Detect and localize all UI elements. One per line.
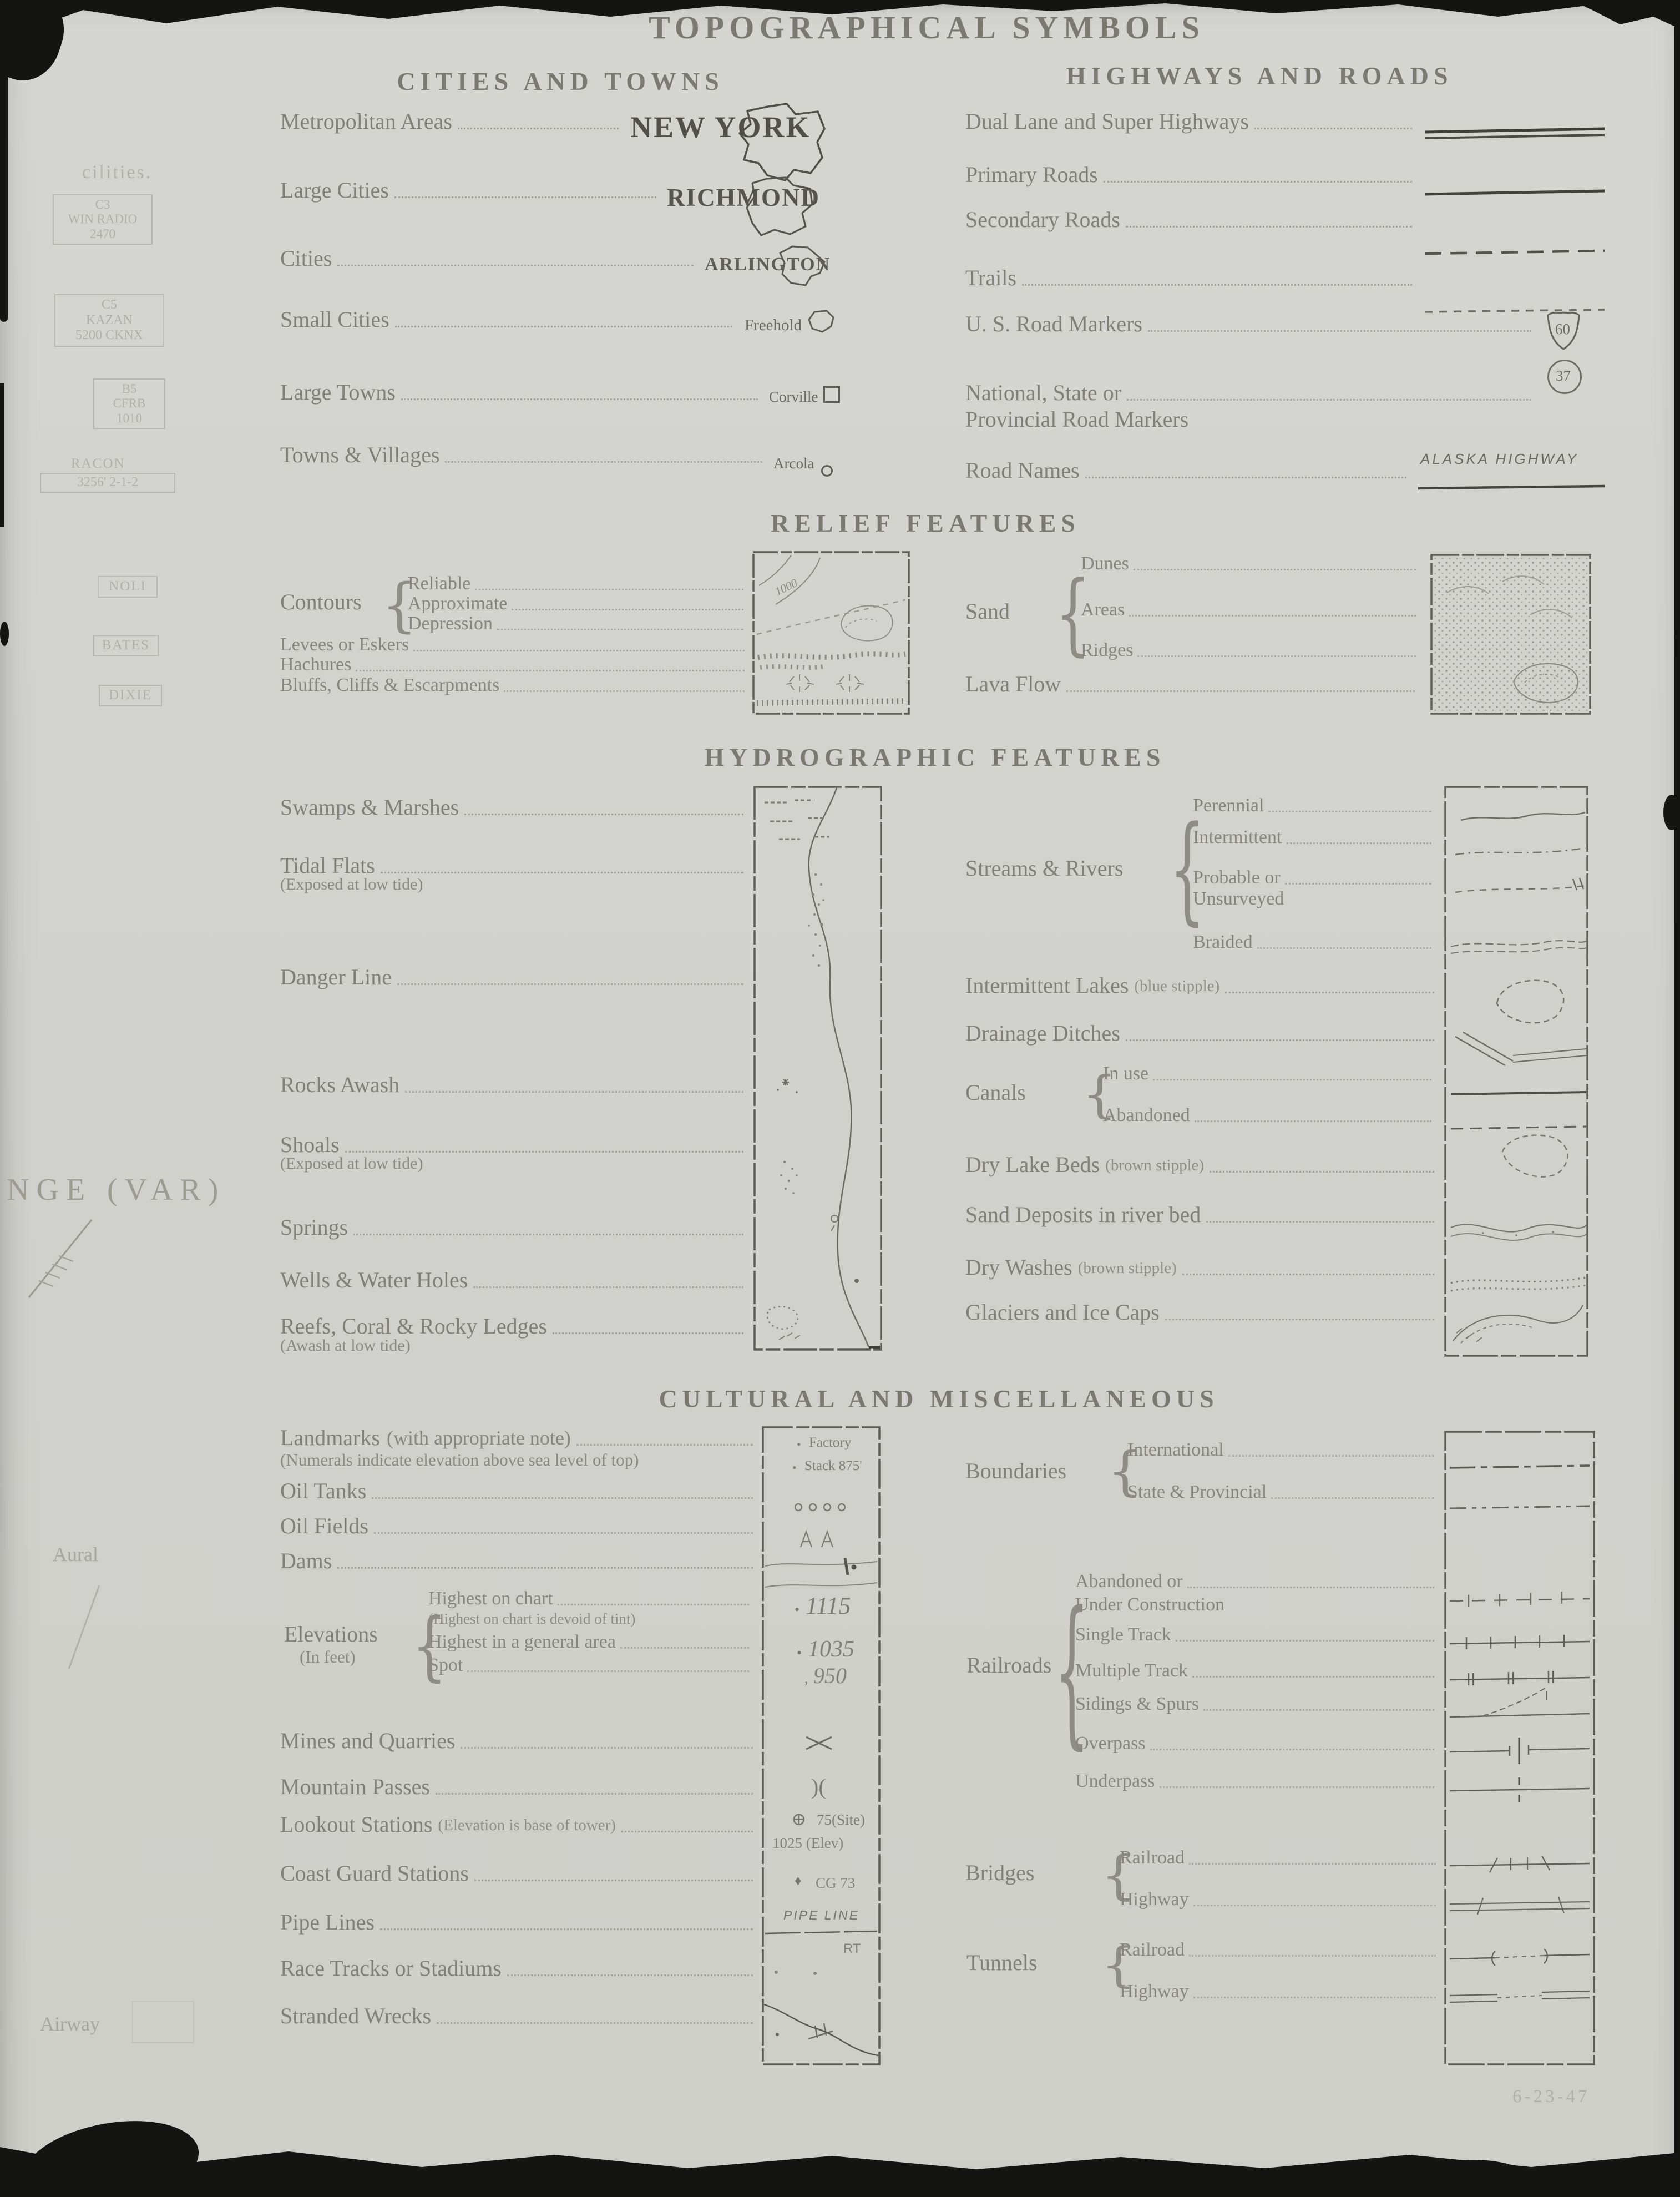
row-canals-inuse: In use <box>1103 1063 1436 1085</box>
dotted-leader <box>474 1880 753 1881</box>
row-label: Swamps & Marshes <box>280 795 459 820</box>
town-village-circle-icon <box>821 465 833 477</box>
row-glaciers: Glaciers and Ice Caps <box>965 1300 1440 1325</box>
row-road-names: Road Names <box>965 458 1412 483</box>
dotted-leader <box>381 872 743 873</box>
row-sand-areas: Areas <box>1081 599 1420 621</box>
dotted-leader <box>1165 1319 1434 1320</box>
row-large-towns: Large Towns <box>280 380 763 405</box>
reefs-note: (Awash at low tide) <box>280 1336 411 1355</box>
dotted-leader <box>1257 947 1431 949</box>
dotted-leader <box>475 589 743 590</box>
row-label: Overpass <box>1075 1733 1146 1755</box>
page-title: TOPOGRAPHICAL SYMBOLS <box>649 9 1205 46</box>
row-streams-braided: Braided <box>1193 931 1436 953</box>
row-dry-lake-beds: Dry Lake Beds(brown stipple) <box>965 1152 1440 1178</box>
row-rr-abandoned: Abandoned or <box>1075 1570 1439 1593</box>
dotted-leader <box>337 265 694 266</box>
mountain-pass-symbol: )( <box>811 1774 826 1800</box>
small-city-outline-icon <box>806 309 837 334</box>
row-paren: (brown stipple) <box>1078 1256 1177 1280</box>
section-hydro-heading: HYDROGRAPHIC FEATURES <box>705 743 1166 772</box>
row-label: State & Provincial <box>1127 1481 1267 1503</box>
margin-tag-bates: BATES <box>93 635 159 656</box>
row-paren: (with appropriate note) <box>387 1425 571 1451</box>
row-coast-guard: Coast Guard Stations <box>280 1861 758 1886</box>
row-contours-depression: Depression <box>408 613 748 635</box>
dotted-leader <box>512 609 743 610</box>
row-bridge-highway: Highway <box>1120 1888 1440 1911</box>
elev-value-highest: 1115 <box>806 1592 851 1620</box>
dotted-leader <box>345 1151 743 1153</box>
row-levees: Levees or Eskers <box>280 634 749 656</box>
elev-dot-icon: , <box>804 1670 808 1687</box>
dotted-leader <box>1137 655 1416 657</box>
margin-radio-box-1: C3 WIN RADIO 2470 <box>53 194 153 245</box>
dotted-leader <box>1268 811 1431 812</box>
row-label: Primary Roads <box>965 162 1098 188</box>
row-label: Probable or <box>1193 867 1281 889</box>
shoals-note: (Exposed at low tide) <box>280 1154 423 1173</box>
row-label: In use <box>1103 1063 1148 1085</box>
provincial-route-number: 37 <box>1556 367 1571 385</box>
large-town-square-icon <box>823 386 840 403</box>
dotted-leader <box>1022 284 1412 286</box>
row-sand-dunes: Dunes <box>1081 553 1420 575</box>
row-label: Pipe Lines <box>280 1910 375 1935</box>
margin-box-line: C3 <box>54 198 151 212</box>
dotted-leader <box>1182 1274 1434 1275</box>
row-label: U. S. Road Markers <box>965 311 1142 337</box>
row-dry-washes: Dry Washes(brown stipple) <box>965 1255 1440 1280</box>
tear-bottom-right-blob <box>1415 2160 1531 2197</box>
row-paren: (brown stipple) <box>1105 1153 1204 1178</box>
row-label: Highway <box>1120 1888 1189 1911</box>
row-label: Highest on chart <box>428 1588 553 1610</box>
row-label: Lava Flow <box>965 671 1061 697</box>
row-label: Cities <box>280 246 332 271</box>
margin-tag-text: NOLI <box>99 579 156 595</box>
dotted-leader <box>1193 1905 1436 1906</box>
dotted-leader <box>1228 1455 1434 1457</box>
row-race-tracks: Race Tracks or Stadiums <box>280 1956 758 1981</box>
row-label: Oil Tanks <box>280 1478 366 1504</box>
row-boundary-international: International <box>1127 1439 1438 1461</box>
dotted-leader <box>394 196 656 198</box>
dotted-leader <box>464 814 743 815</box>
dotted-leader <box>1104 181 1412 183</box>
landmark-dot-icon: • <box>792 1461 797 1475</box>
row-cities: Cities <box>280 246 699 271</box>
row-label: Large Towns <box>280 380 396 405</box>
contours-group-label: Contours <box>280 589 362 615</box>
large-town-symbol-text: Corville <box>769 388 818 406</box>
row-elev-general-area: Highest in a general area <box>428 1631 753 1653</box>
row-label: Depression <box>408 613 493 635</box>
margin-box-line: 1010 <box>94 411 164 426</box>
dotted-leader <box>445 461 762 463</box>
row-label: Mountain Passes <box>280 1774 430 1800</box>
tear-right-nub <box>1663 795 1680 830</box>
row-elev-spot: Spot <box>428 1654 753 1676</box>
dotted-leader <box>405 1091 743 1093</box>
row-label: Abandoned <box>1103 1104 1190 1127</box>
tear-left-strip-2 <box>0 383 4 527</box>
row-label: Glaciers and Ice Caps <box>965 1300 1160 1325</box>
small-city-symbol-text: Freehold <box>745 316 802 335</box>
row-label: Perennial <box>1193 795 1264 817</box>
row-tunnel-railroad: Railroad <box>1120 1939 1440 1961</box>
margin-tag-noli: NOLI <box>98 576 158 598</box>
row-label: Highest in a general area <box>428 1631 616 1653</box>
coast-guard-flag-icon: ♦ <box>795 1873 802 1889</box>
row-streams-probable: Probable or <box>1193 867 1436 889</box>
dotted-leader <box>1254 128 1412 129</box>
row-large-cities: Large Cities <box>280 178 662 203</box>
town-village-symbol-text: Arcola <box>773 455 814 472</box>
row-label: Towns & Villages <box>280 442 439 468</box>
dotted-leader <box>436 1793 753 1795</box>
row-small-cities: Small Cities <box>280 307 738 332</box>
dotted-leader <box>353 1234 743 1235</box>
section-cities-heading: CITIES AND TOWNS <box>397 67 724 96</box>
dotted-leader <box>372 1497 753 1499</box>
row-label: Areas <box>1081 599 1125 621</box>
row-label: Highway <box>1120 1981 1189 2003</box>
dotted-leader <box>337 1567 753 1569</box>
row-label: Reefs, Coral & Rocky Ledges <box>280 1314 547 1339</box>
elevations-sub-label: (In feet) <box>300 1647 356 1667</box>
row-label: Danger Line <box>280 964 392 990</box>
row-rr-overpass: Overpass <box>1075 1733 1439 1755</box>
tear-left-strip-1 <box>0 22 8 322</box>
relief-illustration-box <box>752 551 910 715</box>
dotted-leader <box>507 1974 753 1976</box>
elev-devoid-note: (Highest on chart is devoid of tint) <box>428 1610 635 1628</box>
row-landmarks: Landmarks(with appropriate note) <box>280 1425 758 1451</box>
row-metropolitan-areas: Metropolitan Areas <box>280 109 624 134</box>
row-label: Landmarks <box>280 1425 380 1451</box>
dotted-leader <box>1150 1749 1434 1750</box>
margin-tag-text: BATES <box>94 638 158 654</box>
elev-dot-icon: • <box>797 1645 802 1661</box>
row-intermittent-lakes: Intermittent Lakes(blue stipple) <box>965 973 1440 998</box>
margin-tag-text: DIXIE <box>100 688 161 704</box>
row-canals-abandoned: Abandoned <box>1103 1104 1436 1127</box>
dotted-leader <box>620 1647 749 1649</box>
sand-group-label: Sand <box>965 599 1010 624</box>
row-label: Large Cities <box>280 178 389 203</box>
row-label: Dry Lake Beds <box>965 1152 1100 1178</box>
dotted-leader <box>497 629 743 630</box>
dotted-leader <box>374 1532 753 1534</box>
landmarks-note: (Numerals indicate elevation above sea l… <box>280 1450 639 1470</box>
row-tunnel-highway: Highway <box>1120 1981 1440 2003</box>
row-lookout-stations: Lookout Stations(Elevation is base of to… <box>280 1812 758 1837</box>
dotted-leader <box>356 670 745 671</box>
tunnels-group-label: Tunnels <box>966 1950 1037 1976</box>
cultural-left-illustration-box <box>762 1426 881 2065</box>
dotted-leader <box>461 1747 753 1749</box>
row-label: Secondary Roads <box>965 207 1120 233</box>
margin-racon-box: 3256' 2-1-2 <box>40 473 175 493</box>
tear-bottom-mid-blob <box>816 2163 910 2197</box>
lookout-elev-text: 1025 (Elev) <box>772 1835 843 1852</box>
row-paren: (Elevation is base of tower) <box>438 1813 616 1837</box>
row-pipe-lines: Pipe Lines <box>280 1910 758 1935</box>
pipe-line-text: PIPE LINE <box>783 1908 859 1923</box>
row-label: Levees or Eskers <box>280 634 409 656</box>
landmark-stack-text: Stack 875' <box>804 1458 862 1474</box>
row-label: Approximate <box>408 593 507 615</box>
canals-group-label: Canals <box>965 1080 1026 1105</box>
margin-box-line: C5 <box>55 297 163 313</box>
road-line-symbols <box>1409 100 1609 499</box>
row-rocks-awash: Rocks Awash <box>280 1072 749 1098</box>
row-label: Dams <box>280 1548 332 1574</box>
city-outline-icon <box>776 243 828 289</box>
row-label: Spot <box>428 1654 463 1676</box>
landmark-factory-text: Factory <box>809 1435 851 1451</box>
row-label: Reliable <box>408 573 470 595</box>
row-label: Stranded Wrecks <box>280 2003 431 2029</box>
row-danger-line: Danger Line <box>280 964 749 990</box>
railroads-group-label: Railroads <box>966 1653 1051 1678</box>
row-lava-flow: Lava Flow <box>965 671 1420 697</box>
dotted-leader <box>1192 1676 1434 1678</box>
row-bluffs: Bluffs, Cliffs & Escarpments <box>280 674 749 696</box>
row-bridge-railroad: Railroad <box>1120 1847 1440 1869</box>
row-label: Sand Deposits in river bed <box>965 1202 1201 1228</box>
dotted-leader <box>1085 477 1406 478</box>
row-contours-approximate: Approximate <box>408 593 748 615</box>
row-label: Wells & Water Holes <box>280 1267 468 1293</box>
margin-fragment-text: cilities. <box>82 162 152 183</box>
row-streams-perennial: Perennial <box>1193 795 1436 817</box>
row-springs: Springs <box>280 1215 749 1240</box>
dotted-leader <box>1066 690 1415 692</box>
date-stamp: 6-23-47 <box>1512 2087 1590 2107</box>
large-city-outline-icon <box>742 174 816 239</box>
sand-illustration-box <box>1430 554 1591 715</box>
row-dual-lane: Dual Lane and Super Highways <box>965 109 1418 134</box>
margin-tag-dixie: DIXIE <box>99 685 162 706</box>
section-cultural-heading: CULTURAL AND MISCELLANEOUS <box>659 1384 1218 1413</box>
row-label: Race Tracks or Stadiums <box>280 1956 502 1981</box>
row-hachures: Hachures <box>280 654 749 676</box>
margin-airway-ghost-box <box>132 2001 194 2043</box>
dotted-leader <box>1195 1120 1431 1122</box>
row-wells: Wells & Water Holes <box>280 1267 749 1293</box>
us-route-number: 60 <box>1555 321 1570 338</box>
row-contours-reliable: Reliable <box>408 573 748 595</box>
dotted-leader <box>1206 1221 1434 1223</box>
hydro-right-illustration-box <box>1444 786 1588 1357</box>
row-stranded-wrecks: Stranded Wrecks <box>280 2003 758 2029</box>
dotted-leader <box>437 2022 753 2024</box>
row-paren: (blue stipple) <box>1134 974 1219 998</box>
margin-aural-text: Aural <box>53 1543 98 1566</box>
margin-airway-text: Airway <box>40 2012 100 2036</box>
lookout-tower-icon: ⊕ <box>791 1808 807 1830</box>
dotted-leader <box>504 690 745 692</box>
row-label: Intermittent <box>1193 826 1282 849</box>
margin-box-line: B5 <box>94 382 164 396</box>
dotted-leader <box>473 1286 743 1288</box>
dotted-leader <box>1153 1079 1431 1080</box>
row-oil-tanks: Oil Tanks <box>280 1478 758 1504</box>
row-rr-under-construction: Under Construction <box>1075 1594 1224 1616</box>
row-label: Metropolitan Areas <box>280 109 452 134</box>
race-track-text: RT <box>843 1941 861 1957</box>
bridges-group-label: Bridges <box>965 1860 1034 1886</box>
boundaries-group-label: Boundaries <box>965 1458 1066 1484</box>
row-label: Lookout Stations <box>280 1812 432 1837</box>
row-label: Mines and Quarries <box>280 1728 455 1754</box>
row-label: Small Cities <box>280 307 389 332</box>
tear-right-strip <box>1674 0 1680 2197</box>
dotted-leader <box>1210 1171 1434 1173</box>
dotted-leader <box>576 1444 753 1446</box>
tear-top-right <box>1570 0 1680 29</box>
dotted-leader <box>1160 1786 1434 1788</box>
row-label: Dual Lane and Super Highways <box>965 109 1249 134</box>
section-highways-heading: HIGHWAYS AND ROADS <box>1066 61 1453 90</box>
dotted-leader <box>553 1332 743 1334</box>
dotted-leader <box>1187 1587 1434 1588</box>
row-mountain-passes: Mountain Passes <box>280 1774 758 1800</box>
row-label: Braided <box>1193 931 1253 953</box>
row-label: Railroad <box>1120 1847 1185 1869</box>
margin-radio-box-3: B5 CFRB 1010 <box>93 378 165 429</box>
row-mines: Mines and Quarries <box>280 1728 758 1754</box>
dotted-leader <box>1129 615 1416 617</box>
cultural-right-illustration-box <box>1444 1431 1595 2065</box>
row-streams-intermittent: Intermittent <box>1193 826 1436 849</box>
row-rr-multiple: Multiple Track <box>1075 1660 1439 1682</box>
dotted-leader <box>397 983 743 985</box>
margin-box-line: 3256' 2-1-2 <box>41 475 174 491</box>
row-label: Ridges <box>1081 639 1133 661</box>
dotted-leader <box>1126 1039 1434 1041</box>
margin-box-line: 5200 CKNX <box>55 328 163 344</box>
margin-box-line: KAZAN <box>55 313 163 329</box>
dotted-leader <box>1225 992 1434 993</box>
margin-box-line: CFRB <box>94 396 164 411</box>
dotted-leader <box>1287 842 1431 844</box>
dotted-leader <box>1193 1997 1436 1998</box>
tidal-flats-note: (Exposed at low tide) <box>280 875 423 894</box>
elevations-group-label: Elevations <box>284 1622 378 1647</box>
row-drainage-ditches: Drainage Ditches <box>965 1021 1440 1046</box>
dotted-leader <box>1126 226 1412 228</box>
margin-scratch-line <box>68 1585 100 1669</box>
elev-value-spot: 950 <box>813 1663 847 1689</box>
dotted-leader <box>558 1604 749 1605</box>
row-label: Rocks Awash <box>280 1072 399 1098</box>
row-rr-sidings: Sidings & Spurs <box>1075 1693 1439 1715</box>
row-label: Oil Fields <box>280 1513 368 1539</box>
dotted-leader <box>395 326 732 327</box>
hydro-left-illustration-box <box>753 786 882 1351</box>
dotted-leader <box>1189 1863 1436 1865</box>
row-rr-single: Single Track <box>1075 1624 1439 1646</box>
row-label: National, State or <box>965 380 1121 406</box>
row-dams: Dams <box>280 1548 758 1574</box>
elev-dot-icon: • <box>795 1602 799 1618</box>
dotted-leader <box>1203 1709 1434 1711</box>
coast-guard-text: CG 73 <box>816 1875 855 1892</box>
row-label: Road Names <box>965 458 1080 483</box>
margin-box-line: 2470 <box>54 227 151 241</box>
scanned-legend-page: TOPOGRAPHICAL SYMBOLS CITIES AND TOWNS H… <box>0 0 1680 2197</box>
row-label: Dry Washes <box>965 1255 1072 1280</box>
landmark-dot-icon: • <box>797 1437 801 1452</box>
row-label: Multiple Track <box>1075 1660 1188 1682</box>
row-label: Trails <box>965 265 1016 291</box>
dotted-leader <box>621 1831 753 1832</box>
dotted-leader <box>1285 883 1431 885</box>
streams-group-label: Streams & Rivers <box>965 856 1123 881</box>
dotted-leader <box>413 650 745 651</box>
lookout-site-text: 75(Site) <box>817 1811 865 1829</box>
row-oil-fields: Oil Fields <box>280 1513 758 1539</box>
row-elev-highest-chart: Highest on chart <box>428 1588 753 1610</box>
row-label: Dunes <box>1081 553 1129 575</box>
row-label: Intermittent Lakes <box>965 973 1129 998</box>
dotted-leader <box>401 398 758 400</box>
row-label: Bluffs, Cliffs & Escarpments <box>280 674 499 696</box>
row-boundary-state: State & Provincial <box>1127 1481 1438 1503</box>
row-sand-ridges: Ridges <box>1081 639 1420 661</box>
tear-left-speck <box>0 622 9 646</box>
margin-box-line: WIN RADIO <box>54 212 151 226</box>
margin-range-var-text: NGE (VAR) <box>7 1172 225 1208</box>
section-relief-heading: RELIEF FEATURES <box>771 508 1080 538</box>
row-trails: Trails <box>965 265 1418 291</box>
row-natl-road-markers-line2: Provincial Road Markers <box>965 407 1188 432</box>
row-label: Springs <box>280 1215 348 1240</box>
row-label: International <box>1127 1439 1224 1461</box>
row-label: Railroad <box>1120 1939 1185 1961</box>
elev-value-general: 1035 <box>808 1636 854 1663</box>
row-label: Hachures <box>280 654 351 676</box>
metropolitan-outline-icon <box>733 101 829 185</box>
row-swamps: Swamps & Marshes <box>280 795 749 820</box>
row-label: Single Track <box>1075 1624 1171 1646</box>
dotted-leader <box>1176 1640 1434 1642</box>
dotted-leader <box>1134 569 1416 570</box>
row-towns-villages: Towns & Villages <box>280 442 768 468</box>
road-name-sample: ALASKA HIGHWAY <box>1420 451 1578 468</box>
dotted-leader <box>467 1670 749 1672</box>
dotted-leader <box>458 128 619 129</box>
dotted-leader <box>380 1928 753 1930</box>
row-sand-deposits: Sand Deposits in river bed <box>965 1202 1440 1228</box>
margin-range-arrow-icon <box>22 1215 117 1304</box>
row-reefs: Reefs, Coral & Rocky Ledges <box>280 1314 749 1339</box>
row-primary-roads: Primary Roads <box>965 162 1418 188</box>
row-label: Coast Guard Stations <box>280 1861 469 1886</box>
row-label: Abandoned or <box>1075 1570 1183 1593</box>
margin-radio-box-2: C5 KAZAN 5200 CKNX <box>54 294 164 347</box>
row-label: Drainage Ditches <box>965 1021 1120 1046</box>
margin-racon-label: RACON <box>71 456 125 472</box>
row-secondary-roads: Secondary Roads <box>965 207 1418 233</box>
row-rr-underpass: Underpass <box>1075 1770 1439 1792</box>
dotted-leader <box>1271 1497 1434 1499</box>
row-label: Sidings & Spurs <box>1075 1693 1199 1715</box>
